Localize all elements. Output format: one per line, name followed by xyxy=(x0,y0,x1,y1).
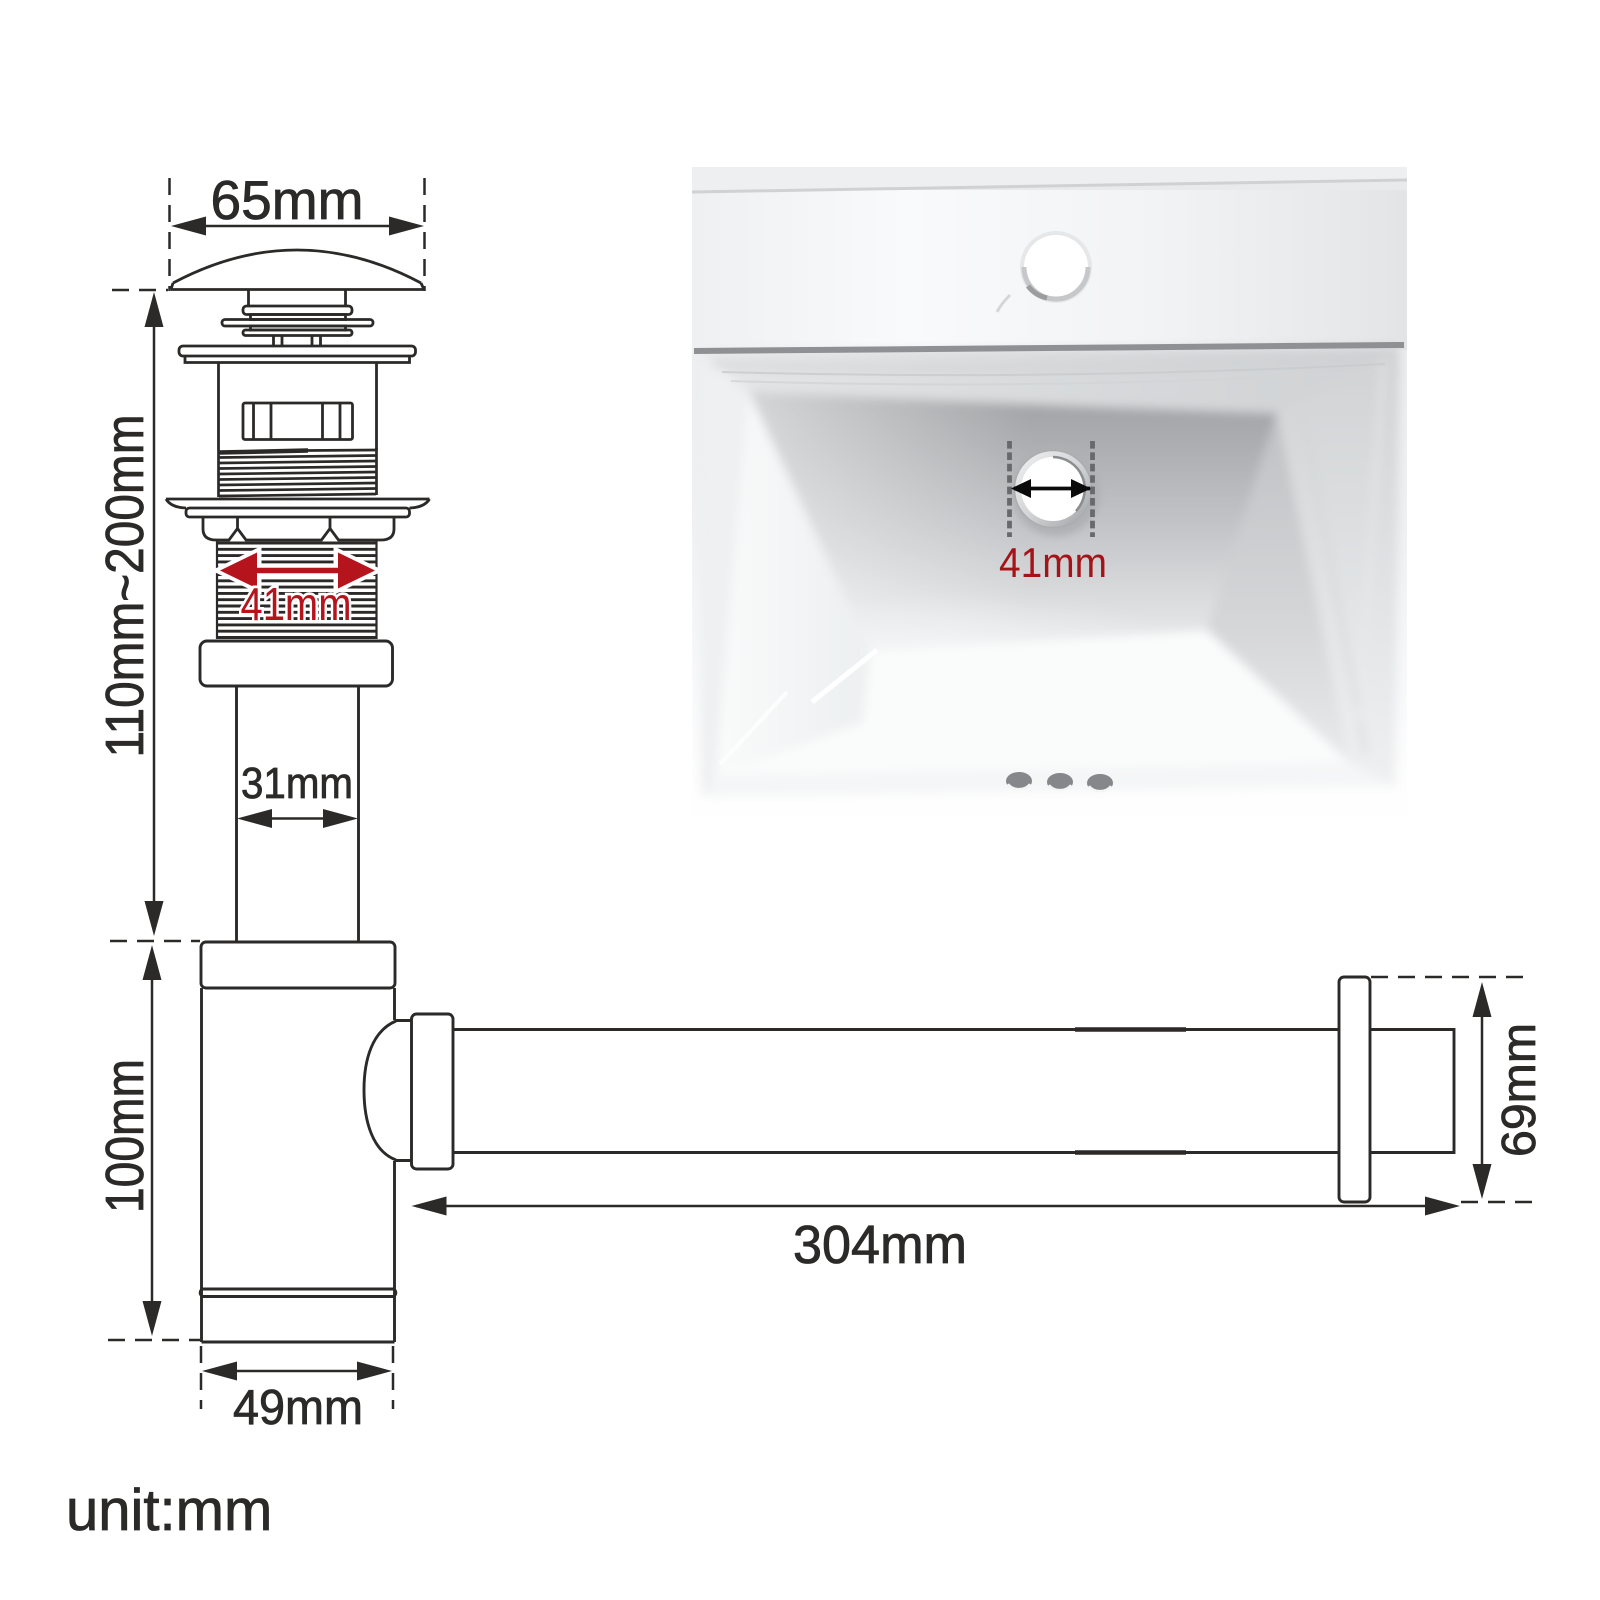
svg-text:31mm: 31mm xyxy=(241,759,353,808)
svg-text:69mm: 69mm xyxy=(1493,1023,1546,1157)
svg-text:304mm: 304mm xyxy=(793,1215,967,1275)
svg-text:unit:mm: unit:mm xyxy=(66,1478,272,1543)
svg-text:41mm: 41mm xyxy=(999,539,1107,586)
svg-text:41mm: 41mm xyxy=(241,578,352,630)
svg-text:110mm~200mm: 110mm~200mm xyxy=(95,415,155,758)
svg-text:100mm: 100mm xyxy=(95,1059,155,1213)
svg-text:49mm: 49mm xyxy=(233,1381,363,1435)
svg-text:65mm: 65mm xyxy=(211,169,364,231)
